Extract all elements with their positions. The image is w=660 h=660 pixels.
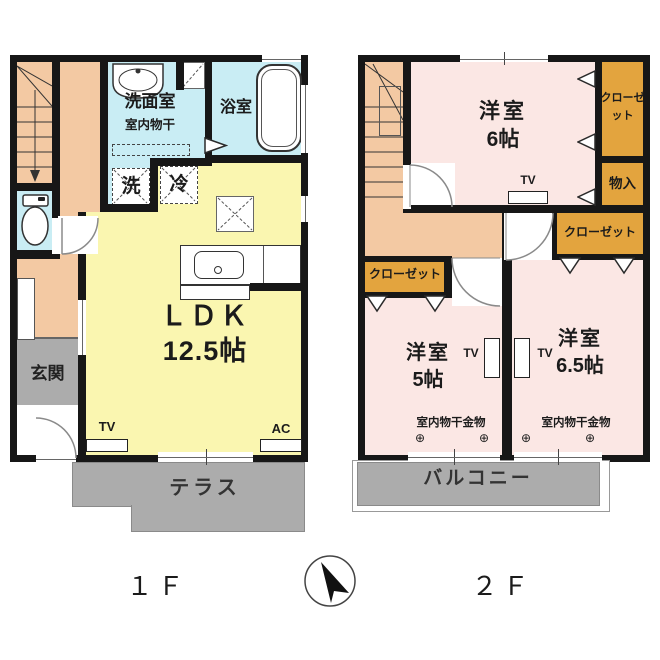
- ldk-name: ＬＤＫ: [110, 301, 300, 332]
- wall: [100, 62, 108, 212]
- storage-door-triangle: [577, 188, 597, 206]
- floor1-terrace-area-ext: [131, 505, 305, 532]
- closet-door-triangle: [577, 70, 597, 88]
- closet-door-triangle: [366, 295, 388, 313]
- washer-box: 洗: [112, 168, 150, 206]
- window: [78, 300, 86, 355]
- bedroom65-door-arc: [504, 211, 555, 262]
- floor1-shoe-cabinet: [17, 278, 35, 340]
- closet-door-triangle: [613, 257, 635, 275]
- window: [158, 452, 253, 462]
- floor-plan: 洗 冷 洗面室 室内物干 浴室 ＬＤＫ 12.5帖 TV AC 玄関 テラス １…: [0, 0, 660, 660]
- washer-label: 洗: [113, 176, 149, 198]
- bedroom5-door-arc: [450, 256, 502, 308]
- wall: [176, 62, 184, 90]
- window: [408, 452, 500, 462]
- wall: [250, 283, 303, 291]
- wall: [403, 62, 411, 165]
- closet-c-label: クローゼット: [363, 268, 447, 282]
- drying-hardware-label-65j: 室内物干金物: [520, 417, 632, 430]
- kitchen-divider: [263, 246, 264, 284]
- window: [460, 55, 548, 62]
- anchor-icon: ⊕: [479, 432, 489, 446]
- washroom-label: 洗面室: [104, 92, 196, 112]
- ac-outlet-label: AC: [259, 422, 303, 437]
- bedroom6-label: 洋室 6帖: [440, 100, 566, 152]
- anchor-icon: ⊕: [521, 432, 531, 446]
- window: [514, 452, 602, 462]
- ldk-label: ＬＤＫ 12.5帖: [110, 301, 300, 367]
- anchor-icon: ⊕: [415, 432, 425, 446]
- tv-outlet-label-1f: TV: [85, 420, 129, 435]
- north-compass-icon: [303, 553, 359, 609]
- closet-a-label: クローゼット: [600, 90, 645, 125]
- indoor-drying-dashed-box: [112, 144, 190, 156]
- stairs-icon-2f: [365, 62, 403, 212]
- drying-anchors-65j: ⊕ ⊕: [521, 432, 595, 446]
- door-opening: [52, 218, 60, 254]
- ldk-size: 12.5帖: [110, 336, 300, 367]
- anchor-icon: ⊕: [585, 432, 595, 446]
- wall: [595, 156, 643, 163]
- kitchen-sink-icon: [194, 251, 244, 279]
- ac-outlet-box: [260, 439, 302, 452]
- floor2-label: ２Ｆ: [455, 572, 550, 602]
- balcony-label: バルコニー: [396, 468, 560, 490]
- bedroom6-door-arc: [408, 163, 454, 209]
- tv-outlet-label-65j: TV: [532, 347, 558, 361]
- stairs-icon: [17, 62, 52, 183]
- wall: [150, 160, 158, 212]
- closet-door-triangle: [559, 257, 581, 275]
- skylight-box: [216, 196, 254, 232]
- terrace-label: テラス: [115, 477, 295, 500]
- drying-anchors-5j: ⊕ ⊕: [415, 432, 489, 446]
- bedroom5-size: 5帖: [368, 369, 488, 392]
- wall: [52, 62, 60, 218]
- window: [301, 196, 308, 222]
- closet-b-label: クローゼット: [555, 226, 645, 240]
- tv-outlet-box-1f: [86, 439, 128, 452]
- drying-hardware-label-5j: 室内物干金物: [395, 417, 507, 430]
- closet-door-triangle: [424, 295, 446, 313]
- fridge-box: 冷: [160, 166, 198, 204]
- toilet-door-arc: [60, 216, 100, 258]
- floor1-label: １Ｆ: [110, 572, 205, 602]
- tv-outlet-label-6j: TV: [506, 174, 550, 188]
- bedroom6-size: 6帖: [440, 128, 566, 152]
- bathroom-diagonal-hatch: [181, 62, 205, 89]
- window: [262, 55, 301, 62]
- kitchen-cabinet: [180, 285, 250, 300]
- bath-door-triangle: [204, 137, 228, 154]
- stairs-railing: [379, 86, 401, 136]
- storage-label: 物入: [600, 176, 645, 192]
- bedroom6-name: 洋室: [440, 100, 566, 124]
- entrance-door-arc: [34, 416, 80, 462]
- window: [301, 85, 308, 153]
- washroom-drying-label: 室内物干: [104, 118, 196, 132]
- entrance-label: 玄関: [17, 364, 78, 384]
- tv-outlet-label-5j: TV: [458, 347, 484, 361]
- wall: [205, 155, 303, 163]
- toilet-icon: [20, 194, 51, 249]
- bathroom-label: 浴室: [208, 99, 264, 117]
- wall: [10, 183, 60, 191]
- fridge-label: 冷: [161, 174, 197, 196]
- tv-outlet-box-6j: [508, 191, 548, 204]
- floor2-hallway: [365, 212, 502, 258]
- floor1-hallway-upper: [60, 62, 100, 212]
- wall: [365, 256, 448, 262]
- wall: [150, 158, 212, 166]
- closet-door-triangle: [577, 133, 597, 151]
